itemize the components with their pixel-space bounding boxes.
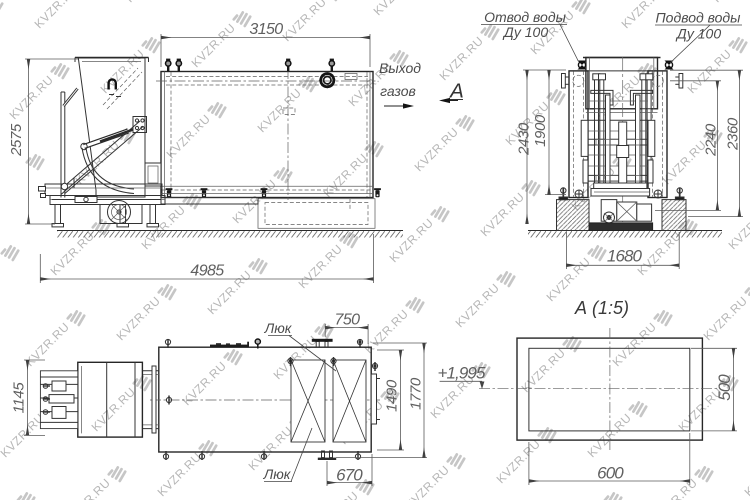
svg-text:Ду 100: Ду 100 [675,26,721,42]
svg-text:1145: 1145 [11,382,28,414]
svg-text:KVZR.RU: KVZR.RU [478,190,528,240]
svg-text:600: 600 [597,464,624,483]
svg-text:3150: 3150 [249,21,283,38]
svg-text:KVZR.RU: KVZR.RU [255,86,305,136]
svg-text:KVZR.RU: KVZR.RU [321,151,371,201]
svg-text:Выход: Выход [379,60,421,76]
svg-text:1490: 1490 [384,379,401,412]
svg-text:KVZR.RU: KVZR.RU [7,73,57,123]
svg-text:KVZR.RU: KVZR.RU [123,0,173,5]
svg-text:Люк: Люк [263,466,292,482]
svg-text:670: 670 [336,466,363,485]
svg-text:1680: 1680 [607,247,643,266]
svg-text:KVZR.RU: KVZR.RU [180,359,230,409]
svg-text:KVZR.RU: KVZR.RU [726,203,750,253]
svg-text:1900: 1900 [532,114,549,147]
svg-text:KVZR.RU: KVZR.RU [230,177,280,227]
svg-text:KVZR.RU: KVZR.RU [189,21,239,71]
svg-text:Ду 100: Ду 100 [502,24,548,40]
svg-text:2575: 2575 [8,123,25,157]
svg-text:KVZR.RU: KVZR.RU [387,216,437,266]
svg-text:Подвод воды: Подвод воды [656,10,742,26]
svg-text:А (1:5): А (1:5) [574,298,629,318]
svg-text:1770: 1770 [408,377,425,410]
svg-text:Люк: Люк [264,320,293,336]
svg-text:KVZR.RU: KVZR.RU [403,463,453,500]
svg-text:KVZR.RU: KVZR.RU [585,411,635,461]
svg-text:KVZR.RU: KVZR.RU [64,476,114,500]
svg-text:KVZR.RU: KVZR.RU [685,47,735,97]
svg-text:4985: 4985 [190,263,224,280]
svg-text:KVZR.RU: KVZR.RU [98,47,148,97]
svg-text:KVZR.RU: KVZR.RU [155,450,205,500]
svg-text:газов: газов [380,83,416,99]
svg-text:KVZR.RU: KVZR.RU [412,125,462,175]
svg-text:KVZR.RU: KVZR.RU [494,437,544,487]
svg-text:KVZR.RU: KVZR.RU [437,34,487,84]
svg-text:KVZR.RU: KVZR.RU [114,294,164,344]
svg-text:KVZR.RU: KVZR.RU [519,346,569,396]
svg-text:KVZR.RU: KVZR.RU [371,0,421,18]
svg-text:2360: 2360 [725,117,742,151]
svg-text:Отвод воды: Отвод воды [484,9,566,25]
svg-text:KVZR.RU: KVZR.RU [701,294,750,344]
svg-text:KVZR.RU: KVZR.RU [453,281,503,331]
svg-text:KVZR.RU: KVZR.RU [610,320,660,370]
svg-text:500: 500 [715,374,734,401]
svg-text:KVZR.RU: KVZR.RU [362,307,412,357]
svg-text:KVZR.RU: KVZR.RU [139,203,189,253]
svg-text:+1,995: +1,995 [437,364,486,383]
svg-text:KVZR.RU: KVZR.RU [32,0,82,31]
svg-text:750: 750 [335,312,361,329]
svg-text:KVZR.RU: KVZR.RU [710,0,750,5]
svg-text:KVZR.RU: KVZR.RU [89,385,139,435]
svg-text:2240: 2240 [703,123,720,157]
svg-text:KVZR.RU: KVZR.RU [23,320,73,370]
svg-text:KVZR.RU: KVZR.RU [742,450,750,500]
svg-text:KVZR.RU: KVZR.RU [544,255,594,305]
svg-text:2430: 2430 [516,122,533,156]
svg-text:KVZR.RU: KVZR.RU [651,476,701,500]
svg-text:KVZR.RU: KVZR.RU [312,489,362,500]
svg-text:KVZR.RU: KVZR.RU [296,242,346,292]
